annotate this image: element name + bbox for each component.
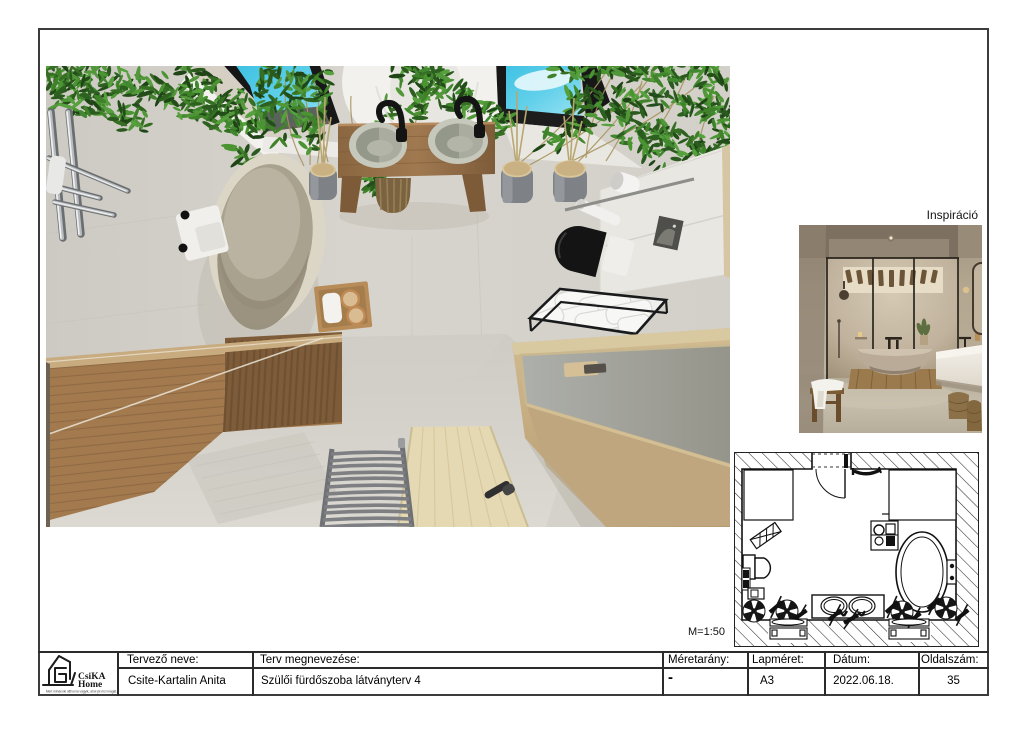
svg-text:Home: Home xyxy=(78,680,102,690)
svg-text:Mert mindenki otthonra vágyik,: Mert mindenki otthonra vágyik, ahol jól … xyxy=(46,690,118,694)
